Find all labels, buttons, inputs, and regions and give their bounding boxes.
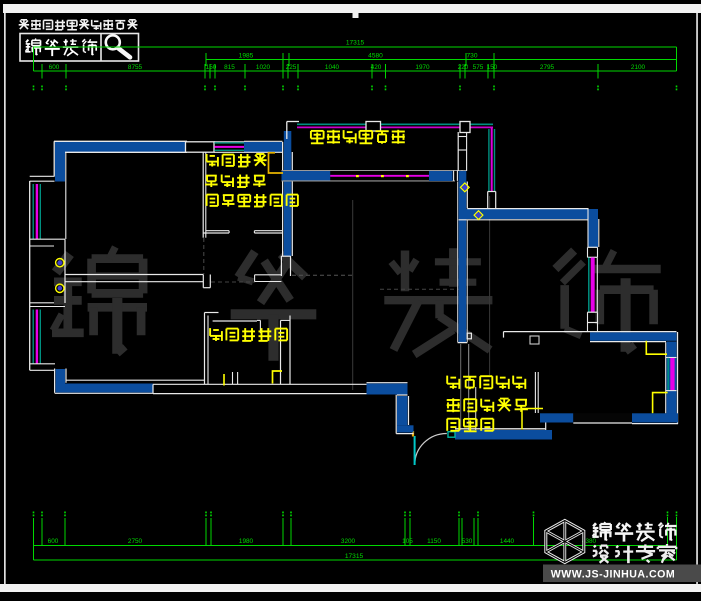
svg-text:17315: 17315 bbox=[346, 40, 365, 47]
svg-text:1150: 1150 bbox=[427, 538, 441, 545]
svg-text:220: 220 bbox=[458, 64, 469, 71]
svg-text:1980: 1980 bbox=[239, 538, 254, 545]
svg-text:530: 530 bbox=[462, 538, 473, 545]
svg-text:815: 815 bbox=[224, 64, 235, 71]
svg-text:575: 575 bbox=[473, 64, 484, 71]
svg-text:2100: 2100 bbox=[631, 64, 646, 71]
svg-text:1040: 1040 bbox=[325, 64, 340, 71]
svg-text:150: 150 bbox=[206, 64, 217, 71]
svg-text:1985: 1985 bbox=[239, 53, 254, 60]
svg-text:2795: 2795 bbox=[540, 64, 555, 71]
svg-text:105: 105 bbox=[402, 538, 413, 545]
svg-text:600: 600 bbox=[49, 64, 60, 71]
svg-text:1020: 1020 bbox=[256, 64, 271, 71]
svg-text:2750: 2750 bbox=[128, 538, 143, 545]
svg-text:17315: 17315 bbox=[345, 553, 364, 560]
svg-text:420: 420 bbox=[371, 64, 382, 71]
svg-text:225: 225 bbox=[286, 64, 297, 71]
svg-text:1440: 1440 bbox=[500, 538, 515, 545]
svg-text:4580: 4580 bbox=[368, 53, 383, 60]
svg-text:600: 600 bbox=[48, 538, 59, 545]
svg-text:1970: 1970 bbox=[415, 64, 430, 71]
svg-text:WWW.JS-JINHUA.COM: WWW.JS-JINHUA.COM bbox=[551, 569, 675, 581]
svg-text:3200: 3200 bbox=[341, 538, 356, 545]
svg-text:150: 150 bbox=[487, 64, 498, 71]
svg-text:8755: 8755 bbox=[128, 64, 143, 71]
svg-text:730: 730 bbox=[466, 53, 477, 60]
